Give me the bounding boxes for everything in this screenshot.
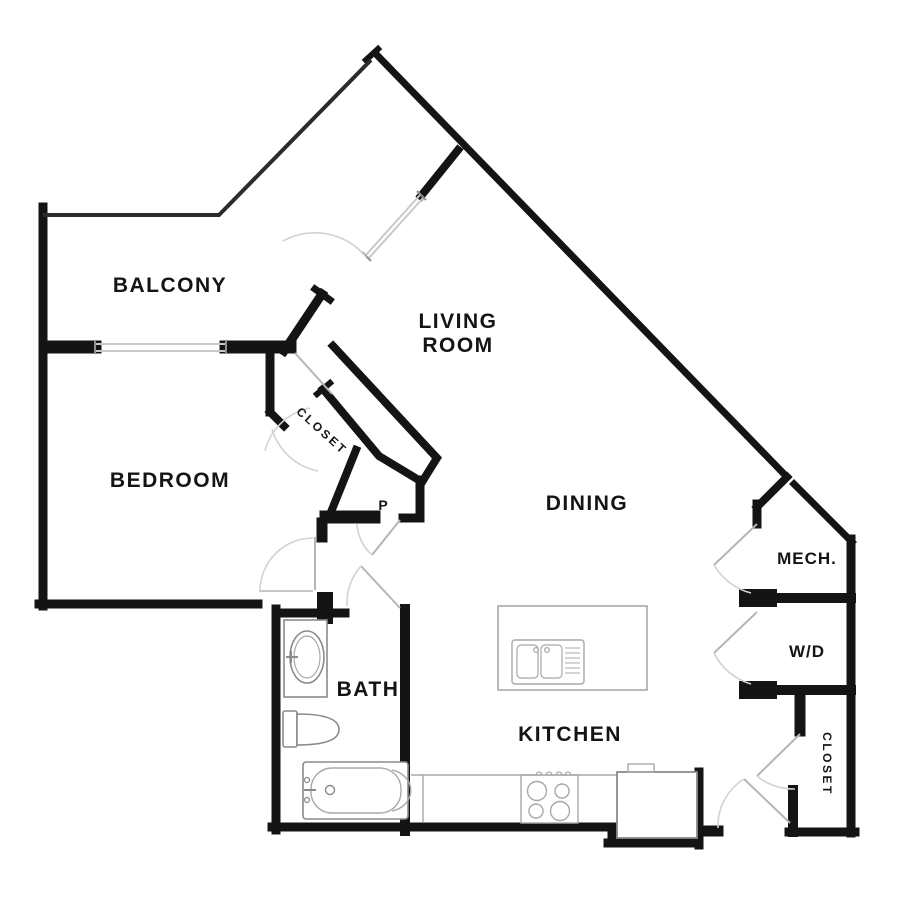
hall-door-arc [272, 429, 318, 471]
bathtub [303, 762, 411, 819]
room-label-living-line2: ROOM [422, 334, 493, 357]
room-label-bath: BATH [337, 678, 400, 701]
wall-balcony-living-divider [284, 294, 322, 351]
toilet [283, 711, 339, 747]
room-label-dining: DINING [546, 492, 629, 515]
floor-plan-svg: BALCONY LIVING ROOM BEDROOM CLOSET P DIN… [0, 0, 900, 900]
entry-door-arc [283, 233, 366, 257]
wall-main-diagonal-upper [375, 53, 787, 477]
wall-pantry-east [403, 480, 420, 518]
burner-4 [551, 802, 570, 821]
room-labels: BALCONY LIVING ROOM BEDROOM CLOSET P DIN… [110, 274, 837, 796]
pantry-door-leaf [372, 520, 400, 555]
rcloset-door-leaf [757, 734, 800, 776]
fridge-body [617, 772, 697, 838]
wall-pantry-neck [331, 450, 356, 512]
railing-line [43, 60, 371, 215]
kitchen-passage-door-leaf [744, 779, 790, 823]
kitchen-fixtures [411, 606, 697, 838]
bath-door-arc [347, 566, 361, 606]
room-label-bedroom: BEDROOM [110, 469, 230, 492]
island-faucet-right [545, 648, 550, 653]
refrigerator [617, 764, 697, 838]
room-label-wd: W/D [789, 642, 825, 661]
kitchen-counter [411, 775, 617, 822]
wall-entry-jamb [421, 150, 458, 196]
island-sink-basin-left [517, 645, 538, 678]
bath-sink [284, 620, 327, 697]
balcony-window [95, 341, 226, 354]
toilet-tank [283, 711, 297, 747]
island-drainboard [565, 648, 580, 673]
window-caps [95, 341, 226, 354]
sidelight-glass [365, 195, 423, 259]
counter-edge [411, 775, 617, 822]
room-label-living-line1: LIVING [418, 310, 497, 333]
tub-knob-hot [305, 778, 310, 783]
tub-knob-cold [305, 798, 310, 803]
wall-main-diagonal-lower [794, 484, 852, 542]
bath-fixtures [283, 620, 411, 819]
window-glass [95, 344, 226, 351]
stove [521, 772, 578, 823]
bath-door-leaf [361, 566, 400, 608]
balcony-railing [43, 60, 371, 215]
floor-plan-page: BALCONY LIVING ROOM BEDROOM CLOSET P DIN… [0, 0, 900, 900]
burner-3 [555, 784, 569, 798]
bedroom-door-arc [260, 538, 313, 591]
pantry-door-arc [357, 524, 372, 555]
stove-body [521, 775, 578, 823]
room-label-pantry: P [378, 497, 387, 513]
mech-door-leaf [714, 524, 757, 565]
tub-drain [326, 786, 335, 795]
burner-2 [529, 804, 543, 818]
room-label-balcony: BALCONY [113, 274, 227, 297]
wd-door-arc [714, 653, 751, 684]
wall-bedroom-east-cap [270, 412, 284, 426]
toilet-bowl [297, 714, 339, 745]
hall-closet-door-leaf [295, 353, 332, 394]
mech-door-arc [714, 565, 751, 593]
sidelight-caps [362, 191, 426, 261]
room-label-mech: MECH. [777, 549, 837, 568]
entry-sidelight [362, 191, 426, 261]
kitchen-island [498, 606, 647, 690]
room-label-right-closet: CLOSET [820, 732, 834, 796]
fridge-handle [628, 764, 654, 772]
burner-1 [528, 782, 547, 801]
wd-door-leaf [714, 612, 757, 653]
kitchen-passage-door-arc [718, 779, 744, 828]
room-label-kitchen: KITCHEN [518, 723, 622, 746]
